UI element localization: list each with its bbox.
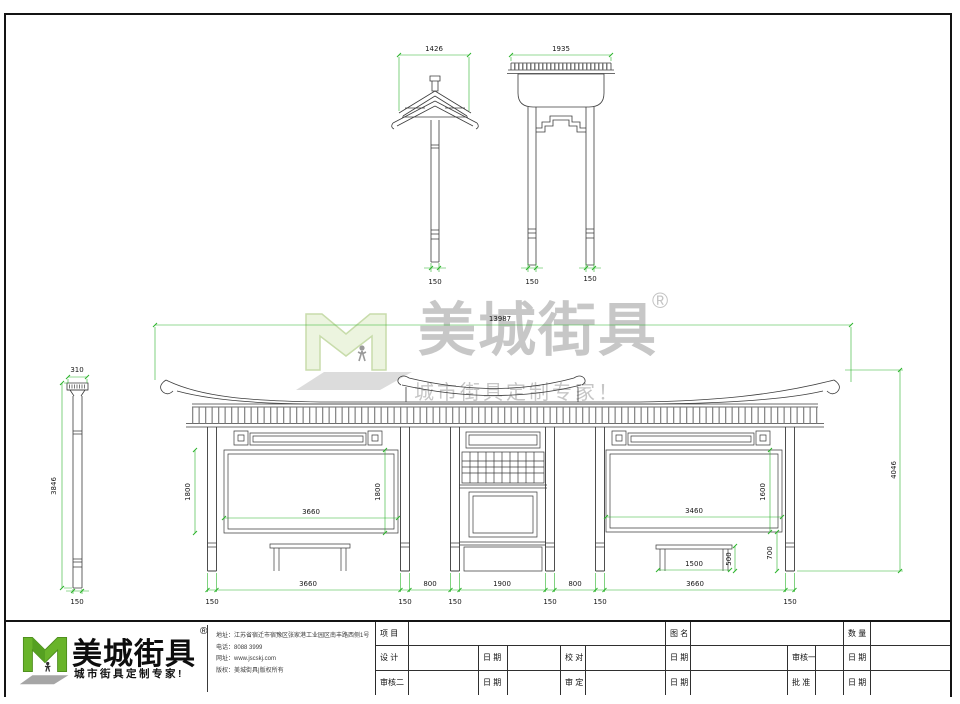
center-bay-structure (459, 432, 547, 571)
dim-label-total-width: 13987 (489, 315, 511, 323)
dim-label-post-width-2: 150 (398, 598, 411, 606)
contact-copyright-value: 美城街具|版权所有 (234, 668, 284, 674)
dim-label-post-width-3: 150 (448, 598, 461, 606)
titleblock-label-date-6: 日 期 (844, 671, 871, 695)
sheet-footer: 美城街具 ® 城市街具定制专家! 地址：江苏省宿迁市宿豫区张家港工业园区南丰路西… (6, 620, 950, 697)
elevation-dimensions (153, 323, 903, 592)
dim-label-gap-left: 800 (423, 580, 436, 588)
contact-website-label: 网址： (216, 656, 234, 662)
dim-label-gate-front-leg-right: 150 (583, 275, 596, 283)
titleblock-label-review-2: 审核二 (376, 671, 409, 695)
shelter-eave-rafters (186, 404, 824, 427)
drawing-canvas: 1426 150 1935 150 150 (0, 0, 960, 620)
titleblock-label-review-1: 审核一 (788, 646, 816, 670)
titleblock-label-approve: 审 定 (561, 671, 586, 695)
titleblock-value-drawing-name (691, 622, 844, 646)
company-slogan-text: 城市街具定制专家! (74, 666, 184, 681)
contact-address-value: 江苏省宿迁市宿豫区张家港工业园区南丰路西侧1号 (234, 633, 369, 639)
titleblock-value-project (409, 622, 666, 646)
contact-copyright: 版权：美城街具|版权所有 (216, 666, 374, 678)
dim-label-bay-right: 3660 (686, 580, 704, 588)
dim-label-column-cap-width: 310 (70, 366, 83, 374)
dim-label-bench-height: 500 (725, 552, 733, 565)
shelter-roof (161, 376, 840, 404)
contact-address: 地址：江苏省宿迁市宿豫区张家港工业园区南丰路西侧1号 (216, 631, 374, 643)
titleblock-value-date-1 (508, 646, 561, 670)
titleblock-value-ratify (816, 671, 844, 695)
titleblock-label-proofread: 校 对 (561, 646, 586, 670)
left-bay-structure (224, 431, 398, 571)
titleblock-label-quantity: 数 量 (844, 622, 871, 646)
titleblock-label-date-5: 日 期 (666, 671, 691, 695)
contact-phone: 电话：8088 3999 (216, 643, 374, 655)
titleblock-label-drawing-name: 图 名 (666, 622, 691, 646)
right-bay-structure (606, 431, 782, 571)
dim-label-left-panel-height-right: 1800 (374, 483, 382, 501)
titleblock-value-quantity (871, 622, 950, 646)
titleblock-label-date-2: 日 期 (666, 646, 691, 670)
dim-label-right-clearance: 700 (766, 546, 774, 559)
dim-label-column-base: 150 (70, 598, 83, 606)
contact-website-value: www.jscskj.com (234, 656, 276, 662)
contact-copyright-label: 版权： (216, 668, 234, 674)
dim-label-gate-side-base: 150 (428, 278, 441, 286)
titleblock-label-date-4: 日 期 (479, 671, 508, 695)
logo-m-shade (32, 637, 45, 662)
dim-label-gate-side-width: 1426 (425, 45, 443, 53)
dim-label-left-panel-height-left: 1800 (184, 483, 192, 501)
column-dimensions (60, 375, 89, 594)
contact-phone-value: 8088 3999 (234, 645, 262, 651)
titleblock-value-proofread (586, 646, 666, 670)
titleblock-value-date-2 (691, 646, 788, 670)
dim-label-left-panel-width: 3660 (302, 508, 320, 516)
titleblock-value-approve (586, 671, 666, 695)
dim-label-right-panel-width: 3460 (685, 507, 703, 515)
dim-label-post-width-5: 150 (593, 598, 606, 606)
titleblock-value-date-3 (871, 646, 950, 670)
dim-label-right-panel-height: 1600 (759, 483, 767, 501)
contact-phone-label: 电话： (216, 645, 234, 651)
titleblock-value-date-4 (508, 671, 561, 695)
contact-website: 网址：www.jscskj.com (216, 654, 374, 666)
gate-front-dimensions (509, 53, 613, 272)
dim-label-total-height: 4046 (890, 461, 898, 479)
logo-person-icon (45, 662, 50, 672)
dim-label-post-width-1: 150 (205, 598, 218, 606)
dim-label-post-width-6: 150 (783, 598, 796, 606)
dim-label-gap-right: 800 (568, 580, 581, 588)
titleblock-label-design: 设 计 (376, 646, 409, 670)
company-m-logo (18, 627, 72, 691)
titleblock-value-date-5 (691, 671, 788, 695)
titleblock-label-ratify: 批 准 (788, 671, 816, 695)
gate-side-detail (392, 76, 479, 262)
dim-label-post-width-4: 150 (543, 598, 556, 606)
title-block: 项 目 图 名 数 量 设 计 日 期 校 对 日 期 审核一 日 期 审核二 … (375, 622, 950, 695)
company-logo-block: 美城街具 ® 城市街具定制专家! 地址：江苏省宿迁市宿豫区张家港工业园区南丰路西… (6, 622, 375, 695)
dim-label-bench-width: 1500 (685, 560, 703, 568)
dim-label-gate-front-width: 1935 (552, 45, 570, 53)
titleblock-value-design (409, 646, 479, 670)
column-side-detail (67, 383, 88, 588)
dim-label-gate-front-leg-left: 150 (525, 278, 538, 286)
dim-label-bay-left: 3660 (299, 580, 317, 588)
footer-divider (207, 625, 208, 692)
contact-address-label: 地址： (216, 633, 234, 639)
titleblock-value-review-2 (409, 671, 479, 695)
titleblock-value-review-1 (816, 646, 844, 670)
shelter-posts (208, 427, 795, 571)
titleblock-value-date-6 (871, 671, 950, 695)
company-contact-info: 地址：江苏省宿迁市宿豫区张家港工业园区南丰路西侧1号 电话：8088 3999 … (216, 631, 374, 677)
dim-label-bay-center: 1900 (493, 580, 511, 588)
logo-base-shadow (20, 675, 69, 684)
gate-front-detail (507, 63, 615, 265)
titleblock-label-project: 项 目 (376, 622, 409, 646)
cad-sheet: 美城街具 ® 城市街具定制专家！ 1426 150 (0, 0, 960, 704)
titleblock-label-date-1: 日 期 (479, 646, 508, 670)
titleblock-label-date-3: 日 期 (844, 646, 871, 670)
dim-label-column-height: 3846 (50, 477, 58, 495)
